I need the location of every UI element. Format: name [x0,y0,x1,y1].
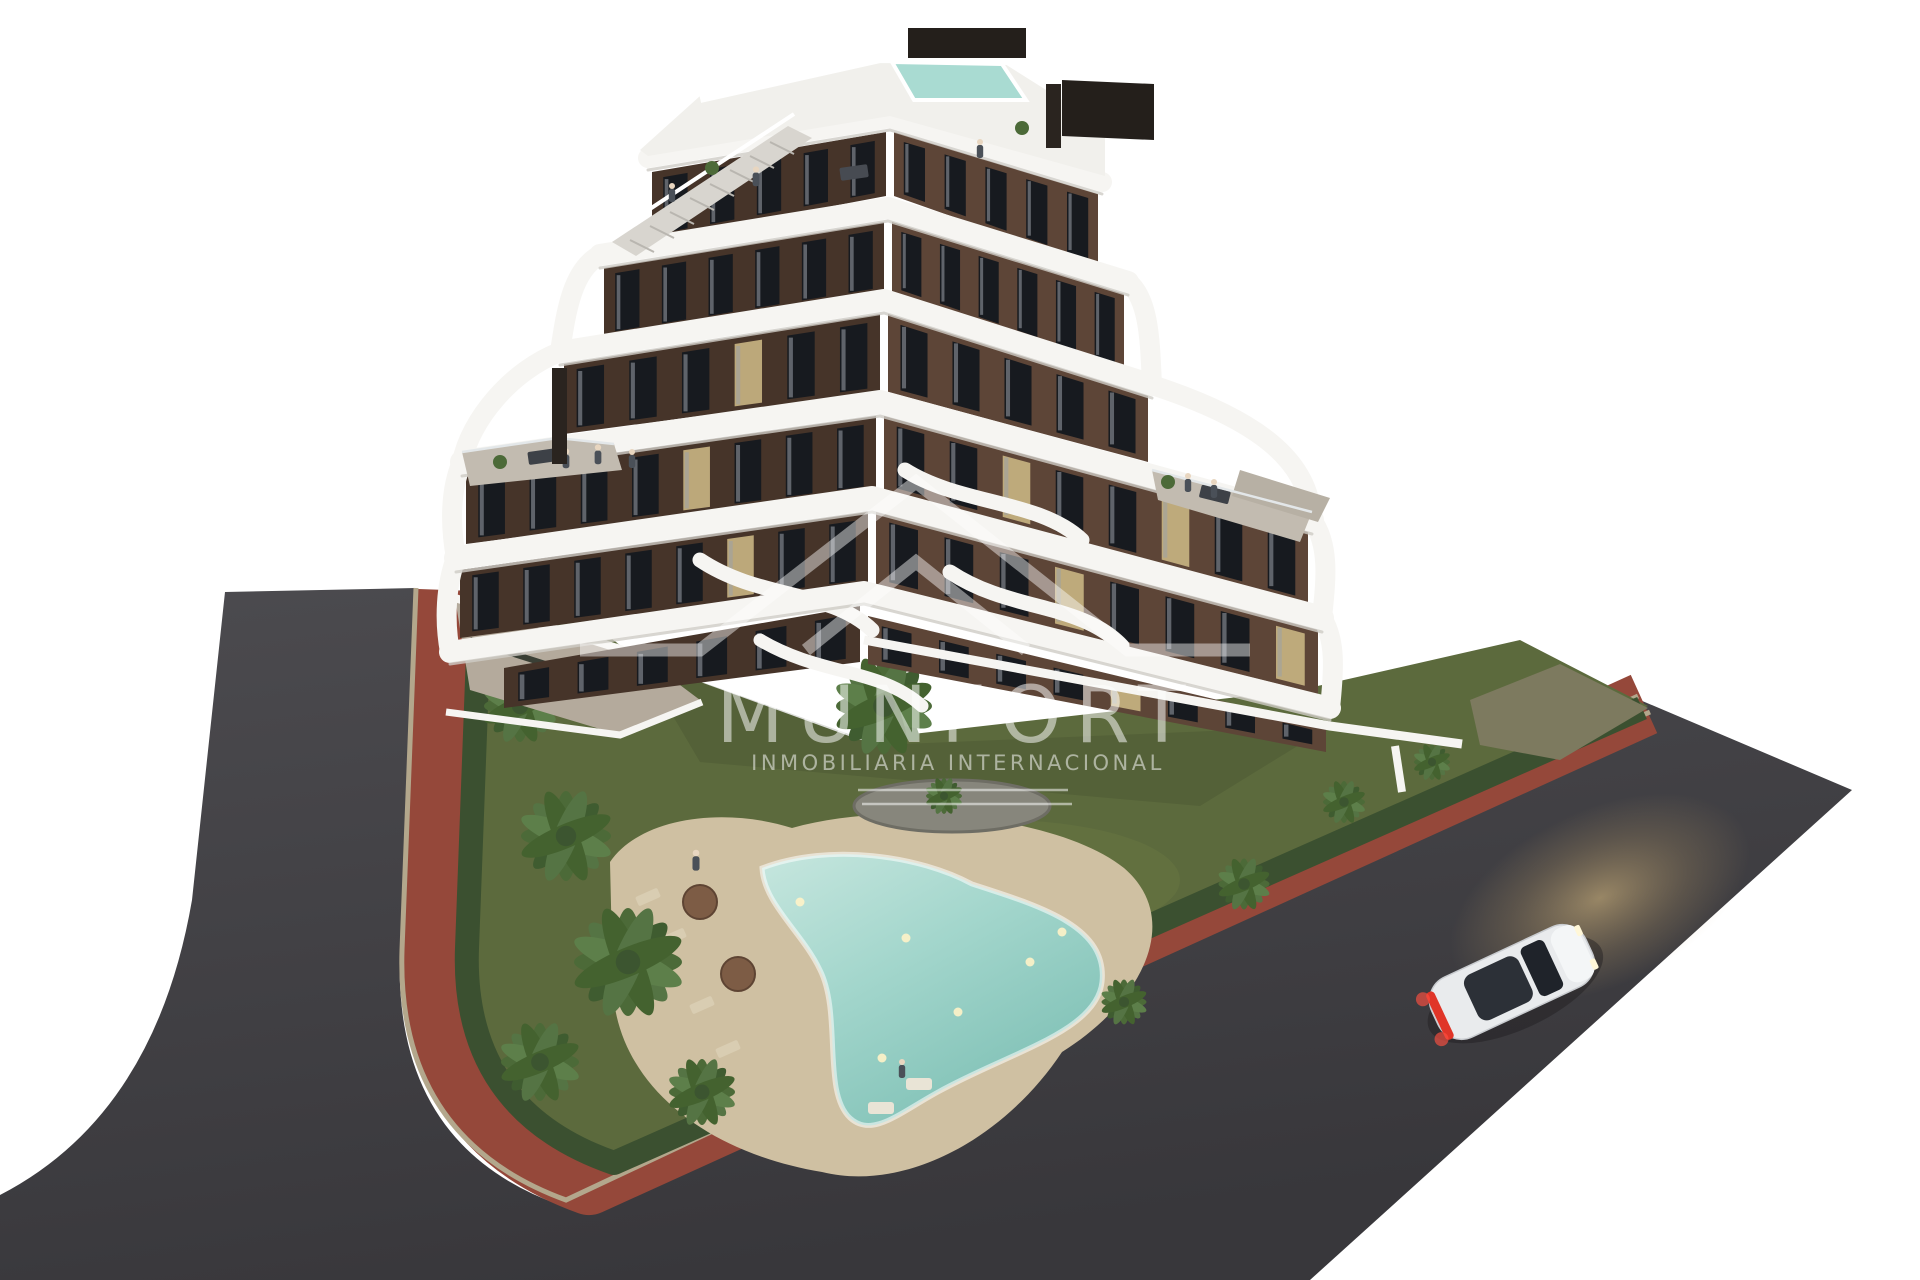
rooftop-plunge-pool [892,62,1026,100]
window-curtain [841,329,845,390]
window-curtain [520,675,525,700]
window-curtain [579,664,584,691]
window-curtain [954,343,958,402]
window-curtain [787,438,791,495]
window-curtain [757,252,761,306]
window-curtain [578,371,582,425]
window-curtain [1269,530,1273,586]
window-curtain [902,327,906,388]
window-curtain [474,577,478,629]
window-curtain [1216,515,1220,571]
window-curtain [634,460,638,516]
window-curtain [710,260,714,314]
window-curtain [987,169,990,221]
window-curtain [736,346,740,404]
window-curtain [1058,376,1062,430]
window-curtain [1110,393,1114,445]
window-curtain [850,237,854,291]
window-curtain [736,445,740,502]
pedestrian [899,1059,905,1078]
window-curtain [803,244,807,298]
window-curtain [531,474,535,529]
window-curtain [480,481,484,535]
pedestrian [692,850,699,871]
window-curtain [1019,270,1022,328]
rooftop-screen [908,28,1026,58]
rooftop-screen [1062,80,1154,140]
window-curtain [1278,628,1282,677]
window-curtain [582,467,586,522]
window-curtain [905,144,908,192]
window-curtain [839,431,843,489]
window-curtain [1096,294,1099,355]
window-curtain [980,258,983,315]
window-curtain [1057,282,1060,342]
window-curtain [685,452,689,508]
window-curtain [1110,486,1114,543]
window-curtain [678,548,682,602]
window-curtain [903,234,906,288]
window-curtain [1006,360,1010,417]
window-curtain [789,338,793,398]
window-curtain [1163,501,1167,558]
window-curtain [1284,725,1288,737]
window-curtain [1068,194,1071,250]
watermark-brand: MUNFORT [716,671,1199,761]
window-curtain [941,246,944,302]
watermark-tagline: INMOBILIARIA INTERNACIONAL [751,751,1165,775]
render-scene: MUNFORT INMOBILIARIA INTERNACIONAL [0,0,1920,1280]
window-curtain [617,275,621,329]
window-curtain [638,654,643,684]
window-curtain [631,363,635,419]
window-curtain [576,563,580,616]
window-curtain [1227,711,1231,726]
window-curtain [805,155,809,204]
window-curtain [525,570,529,623]
window-curtain [1112,584,1116,636]
window-curtain [898,428,902,486]
window-curtain [1167,598,1171,649]
window-curtain [663,267,667,321]
window-curtain [1028,181,1031,235]
window-curtain [683,354,687,411]
window-curtain [946,156,949,206]
window-curtain [627,556,631,610]
